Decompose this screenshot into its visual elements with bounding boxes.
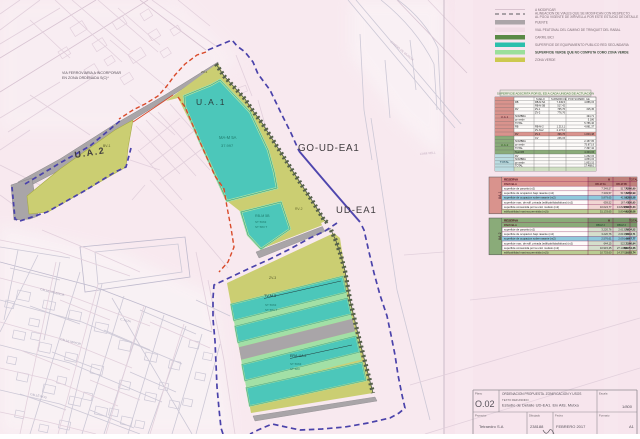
svg-text:396,76: 396,76 xyxy=(557,133,565,136)
svg-text:AL PGOU VIGENTE DE XIRIVELLA P: AL PGOU VIGENTE DE XIRIVELLA POR ESTE ES… xyxy=(535,15,638,19)
svg-text:A1: A1 xyxy=(629,424,635,429)
svg-text:5.834,52: 5.834,52 xyxy=(625,228,636,232)
svg-text:1.843,48: 1.843,48 xyxy=(584,133,594,136)
svg-text:BV-1: BV-1 xyxy=(103,144,110,148)
svg-text:ST 5663: ST 5663 xyxy=(265,303,277,307)
svg-text:Tetraedro S.A: Tetraedro S.A xyxy=(479,424,504,429)
svg-text:RB-M 2: RB-M 2 xyxy=(617,223,626,227)
svg-text:TOTAL: TOTAL xyxy=(515,165,523,168)
svg-text:SUPERFICIE: SUPERFICIE xyxy=(551,97,567,101)
svg-text:37.997: 37.997 xyxy=(221,143,234,148)
svg-text:RB: RB xyxy=(515,126,519,129)
svg-text:superficie consumida por la un: superficie consumida por la unid. modelo… xyxy=(504,246,559,250)
svg-text:SUPERFICIE DE EQUIPAMIENTO PUB: SUPERFICIE DE EQUIPAMIENTO PUBLICO RED S… xyxy=(535,43,630,47)
svg-text:superficie de parcela (m2): superficie de parcela (m2) xyxy=(504,228,535,232)
svg-text:1.166,94: 1.166,94 xyxy=(625,241,636,245)
svg-text:ST 583: ST 583 xyxy=(290,367,300,371)
svg-text:edificabilidad maxima permitid: edificabilidad maxima permitida (m2t) xyxy=(504,251,549,255)
svg-text:RB: RB xyxy=(515,101,519,104)
svg-text:TOTAL: TOTAL xyxy=(500,160,510,164)
svg-text:236,15: 236,15 xyxy=(557,137,565,140)
svg-text:U.A.2: U.A.2 xyxy=(501,143,509,147)
svg-text:EN ZONA ORDENADA S(C)*: EN ZONA ORDENADA S(C)* xyxy=(62,76,109,80)
svg-text:TEXTO REFUNDIDO: TEXTO REFUNDIDO xyxy=(502,398,530,402)
svg-text:RB-M 2: RB-M 2 xyxy=(596,223,605,227)
svg-text:RV: RV xyxy=(515,133,519,136)
svg-text:17.468,0: 17.468,0 xyxy=(584,165,594,168)
svg-text:TOTAL: TOTAL xyxy=(629,218,638,222)
svg-text:7.397,42: 7.397,42 xyxy=(584,147,594,150)
svg-text:Dibujado: Dibujado xyxy=(529,414,540,418)
svg-text:UD-EA1: UD-EA1 xyxy=(336,205,377,216)
svg-text:RB-M 5B: RB-M 5B xyxy=(255,214,270,218)
svg-text:VIAL PEATONAL DEL CAMINO DE TR: VIAL PEATONAL DEL CAMINO DE TRINQUET DEL… xyxy=(535,28,621,32)
svg-text:659,52: 659,52 xyxy=(604,200,612,204)
svg-text:RESERVA: RESERVA xyxy=(504,177,519,181)
svg-text:ST 5663: ST 5663 xyxy=(290,362,302,366)
svg-text:POR SUPERF. GE: POR SUPERF. GE xyxy=(568,97,590,101)
svg-text:ST 5663: ST 5663 xyxy=(255,220,267,224)
svg-text:superficie de ocupacion bajo r: superficie de ocupacion bajo rasante (m2… xyxy=(504,232,554,236)
svg-text:ORDENACION PROPUESTA. ZONIFICA: ORDENACION PROPUESTA. ZONIFICACION Y USO… xyxy=(502,392,581,396)
svg-text:Fecha: Fecha xyxy=(555,414,563,418)
svg-text:644,15: 644,15 xyxy=(604,241,612,245)
svg-text:4.886,15: 4.886,15 xyxy=(584,101,594,104)
svg-text:RV-2: RV-2 xyxy=(295,207,303,211)
svg-text:CV: CV xyxy=(535,137,539,140)
svg-text:RESERVA: RESERVA xyxy=(504,218,519,222)
svg-text:Plano: Plano xyxy=(475,392,483,396)
svg-text:4.881,37: 4.881,37 xyxy=(584,126,594,129)
svg-text:superficie de ocupacion bajo r: superficie de ocupacion bajo rasante (m2… xyxy=(504,191,554,195)
svg-text:2.576,61: 2.576,61 xyxy=(601,237,612,241)
svg-text:Syst RB: Syst RB xyxy=(515,151,524,154)
svg-text:Promotor: Promotor xyxy=(475,414,487,418)
svg-text:238188: 238188 xyxy=(530,424,544,429)
svg-text:SUPERFICIE VERDE QUE NO COMPUT: SUPERFICIE VERDE QUE NO COMPUTA COMO ZON… xyxy=(535,51,629,55)
svg-text:2.173,0: 2.173,0 xyxy=(557,129,566,132)
svg-text:CARRIL BICI: CARRIL BICI xyxy=(535,36,554,40)
svg-text:SUPERFICIE ADSCRITA POR EL ED: SUPERFICIE ADSCRITA POR EL ED A CADA UNI… xyxy=(497,91,594,95)
svg-text:O.02: O.02 xyxy=(475,399,495,409)
svg-text:5.879,65: 5.879,65 xyxy=(601,196,612,200)
svg-text:superficie consumida por la un: superficie consumida por la unid. modelo… xyxy=(504,205,559,209)
svg-text:38.054,36: 38.054,36 xyxy=(624,246,636,250)
svg-text:ZV-4: ZV-4 xyxy=(535,133,541,136)
svg-text:23.845,33: 23.845,33 xyxy=(624,205,636,209)
svg-text:U.A.1: U.A.1 xyxy=(501,115,509,119)
svg-text:superficie max. de edif. priva: superficie max. de edif. privada (edific… xyxy=(504,241,573,245)
svg-text:6.938,06: 6.938,06 xyxy=(625,210,636,214)
svg-text:6.293,58: 6.293,58 xyxy=(625,196,636,200)
svg-text:ZV-2: ZV-2 xyxy=(535,112,541,115)
svg-text:10.024,77: 10.024,77 xyxy=(600,205,612,209)
svg-text:RB-M 5B: RB-M 5B xyxy=(616,182,627,186)
svg-text:5.103,74: 5.103,74 xyxy=(625,251,636,255)
svg-text:VIA FERROVIARIA A INCORPORAR: VIA FERROVIARIA A INCORPORAR xyxy=(62,71,122,75)
svg-text:4.343,15: 4.343,15 xyxy=(584,151,594,154)
svg-text:PARCELA: PARCELA xyxy=(504,223,517,227)
svg-text:PARCELA: PARCELA xyxy=(504,182,517,186)
svg-text:776,76: 776,76 xyxy=(557,112,565,115)
svg-text:10.915,45: 10.915,45 xyxy=(600,246,612,250)
svg-text:ZV-NL2: ZV-NL2 xyxy=(535,129,544,132)
svg-text:TOTAL: TOTAL xyxy=(629,177,638,181)
svg-text:1/800: 1/800 xyxy=(622,404,633,409)
svg-text:7.349,57: 7.349,57 xyxy=(601,187,612,191)
svg-text:FEBRERO 2017: FEBRERO 2017 xyxy=(556,424,586,429)
svg-text:MA-M 5A: MA-M 5A xyxy=(219,135,237,140)
svg-text:TOTAL: TOTAL xyxy=(515,147,523,150)
svg-text:superficie de ocupacion sobre: superficie de ocupacion sobre rasante (m… xyxy=(504,196,556,200)
svg-text:51.133,65: 51.133,65 xyxy=(600,210,612,214)
svg-text:315,45: 315,45 xyxy=(586,108,594,111)
svg-text:superficie max. de edif. priva: superficie max. de edif. privada (edific… xyxy=(504,200,573,204)
svg-text:RB-M 5A: RB-M 5A xyxy=(595,182,606,186)
svg-text:3.220,76: 3.220,76 xyxy=(601,232,612,236)
svg-text:826,95: 826,95 xyxy=(628,200,636,204)
svg-text:5.834,71: 5.834,71 xyxy=(625,232,636,236)
svg-text:ZV-3: ZV-3 xyxy=(269,276,276,280)
svg-text:7.349,57: 7.349,57 xyxy=(601,191,612,195)
svg-text:UA-1: UA-1 xyxy=(498,191,502,199)
svg-text:PUENTE: PUENTE xyxy=(535,21,548,25)
svg-text:edificabilidad maxima permitid: edificabilidad maxima permitida (m2t) xyxy=(504,210,549,214)
svg-text:Estudio de Detalle UD-EA1. Eix: Estudio de Detalle UD-EA1. Eix Alts. Mut… xyxy=(502,403,579,408)
svg-text:7.866,99: 7.866,99 xyxy=(625,191,636,195)
svg-text:UA-2: UA-2 xyxy=(498,232,502,240)
svg-text:7.866,99: 7.866,99 xyxy=(625,187,636,191)
svg-text:Escala: Escala xyxy=(599,392,608,396)
svg-text:SUELO: SUELO xyxy=(536,97,545,101)
svg-text:Formato: Formato xyxy=(599,414,610,418)
svg-text:U.A.1: U.A.1 xyxy=(196,97,226,107)
svg-text:4.667,77: 4.667,77 xyxy=(625,237,636,241)
svg-text:superficie de parcela (m2): superficie de parcela (m2) xyxy=(504,187,535,191)
svg-text:ZONA VERDE: ZONA VERDE xyxy=(535,58,556,62)
svg-text:GO-UD-EA1: GO-UD-EA1 xyxy=(298,143,360,154)
svg-text:3.220,76: 3.220,76 xyxy=(601,228,612,232)
svg-text:ST 583 T: ST 583 T xyxy=(265,308,277,312)
svg-text:10.733,60: 10.733,60 xyxy=(600,251,612,255)
svg-text:RV: RV xyxy=(515,108,519,111)
svg-text:ERA-UA 2: ERA-UA 2 xyxy=(290,354,306,358)
svg-text:superficie de ocupacion sobre: superficie de ocupacion sobre rasante (m… xyxy=(504,237,556,241)
svg-text:ZV-1: ZV-1 xyxy=(201,70,208,74)
svg-text:ST 583 T: ST 583 T xyxy=(255,225,267,229)
